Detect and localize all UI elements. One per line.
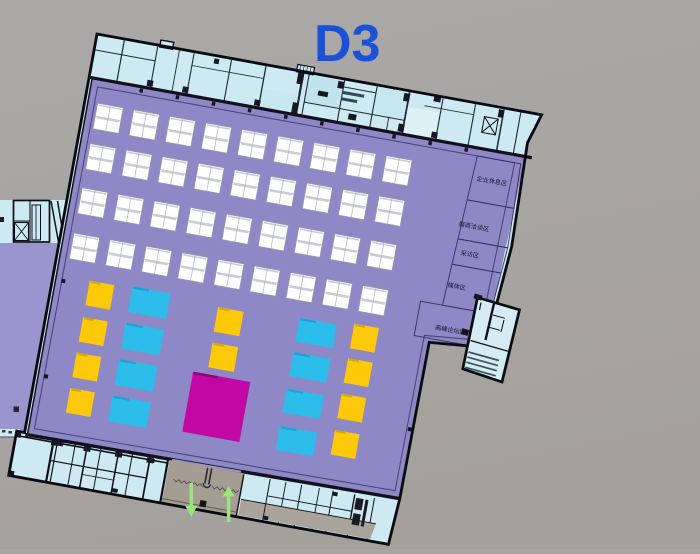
svg-text:D3: D3	[314, 15, 380, 73]
